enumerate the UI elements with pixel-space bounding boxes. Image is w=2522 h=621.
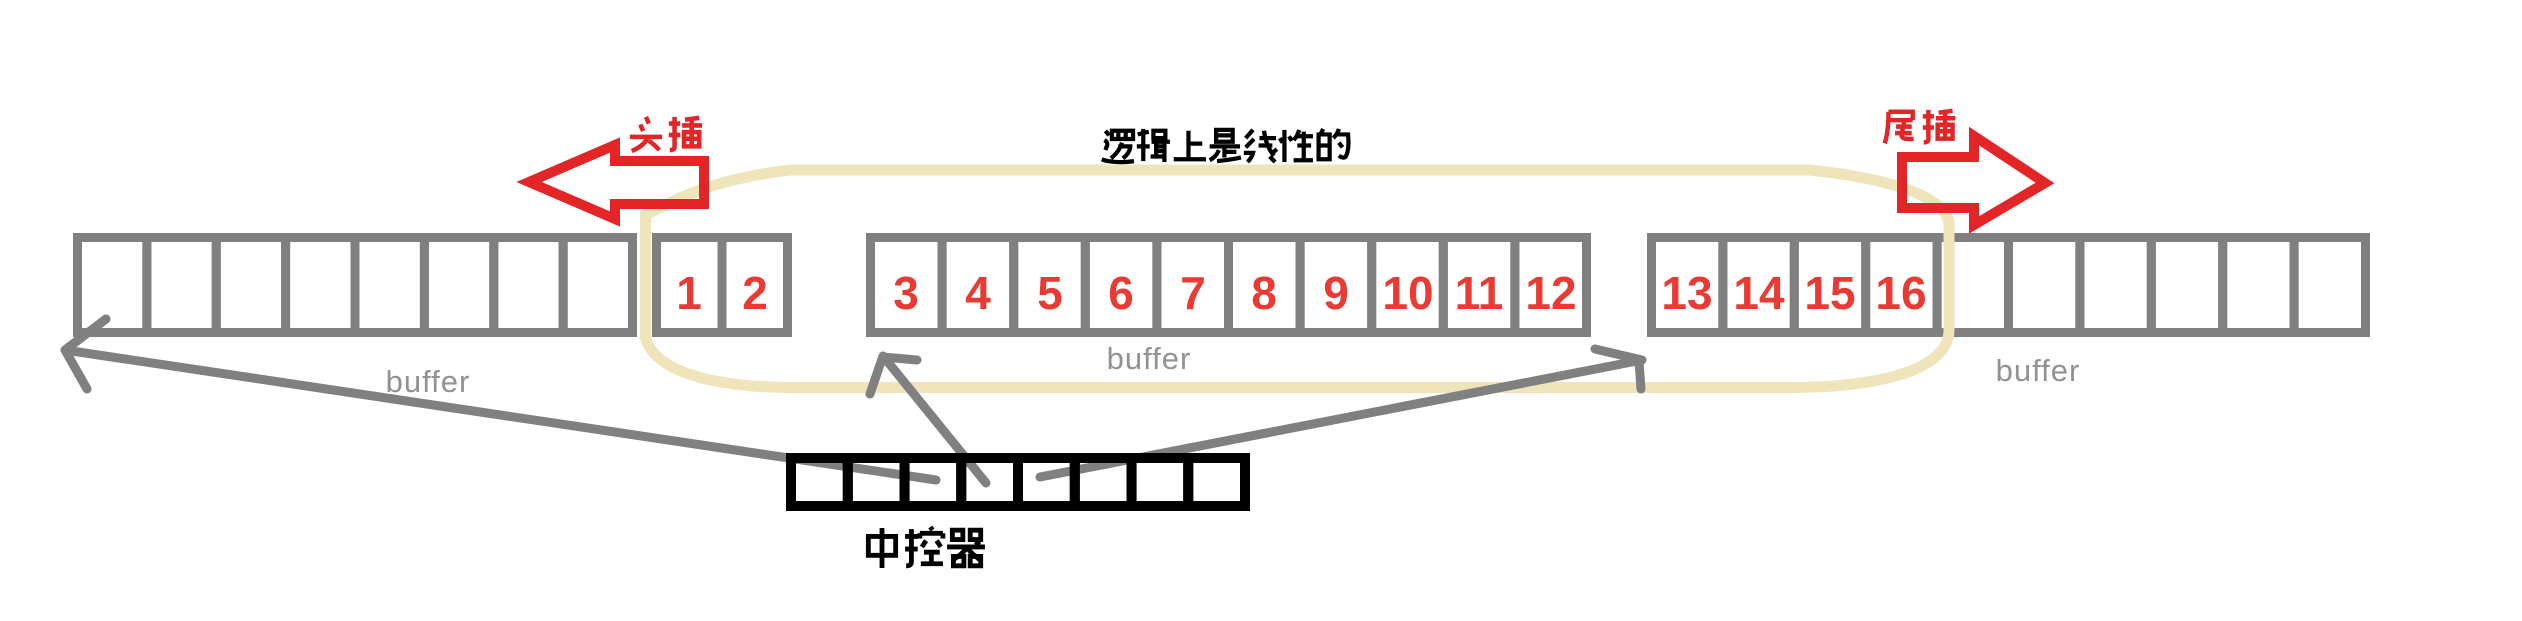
svg-text:9: 9 [1323, 267, 1349, 319]
svg-text:buffer: buffer [1996, 353, 2081, 388]
svg-text:buffer: buffer [1107, 341, 1192, 376]
svg-text:1: 1 [676, 267, 702, 319]
svg-text:buffer: buffer [386, 364, 471, 399]
svg-text:10: 10 [1382, 267, 1433, 319]
svg-text:12: 12 [1525, 267, 1576, 319]
svg-text:2: 2 [742, 267, 768, 319]
svg-text:3: 3 [893, 267, 919, 319]
svg-text:8: 8 [1251, 267, 1277, 319]
svg-text:11: 11 [1455, 267, 1504, 319]
svg-text:13: 13 [1661, 267, 1712, 319]
svg-text:5: 5 [1037, 267, 1063, 319]
svg-text:7: 7 [1180, 267, 1206, 319]
svg-text:14: 14 [1733, 267, 1785, 319]
svg-text:16: 16 [1875, 267, 1926, 319]
svg-text:4: 4 [965, 267, 991, 319]
svg-text:6: 6 [1108, 267, 1134, 319]
svg-text:15: 15 [1804, 267, 1855, 319]
